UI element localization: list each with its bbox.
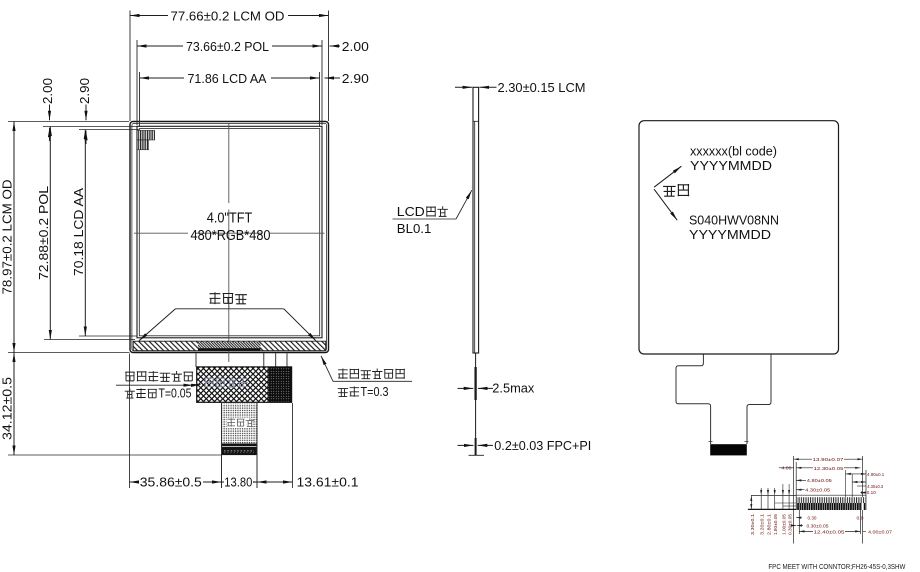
svg-text:0.30±0.05: 0.30±0.05 [788, 513, 793, 535]
svg-text:2.30±0.15 LCM: 2.30±0.15 LCM [498, 80, 586, 95]
svg-text:4.90±0.1: 4.90±0.1 [867, 472, 885, 477]
svg-text:13.90±0.07: 13.90±0.07 [813, 457, 845, 462]
svg-text:2.00: 2.00 [342, 39, 369, 54]
svg-text:T=0.05: T=0.05 [159, 386, 192, 400]
svg-text:xxxxxx(bl code): xxxxxx(bl code) [690, 144, 777, 159]
svg-text:77.66±0.2 LCM OD: 77.66±0.2 LCM OD [171, 8, 285, 23]
svg-text:FPC MEET WITH CONNTOR;FH26-45S: FPC MEET WITH CONNTOR;FH26-45S-0,3SHW [768, 562, 906, 571]
svg-text:72.88±0.2 POL: 72.88±0.2 POL [36, 186, 51, 280]
svg-text:12.40±0.05: 12.40±0.05 [814, 529, 846, 534]
svg-text:2.5max: 2.5max [492, 381, 534, 396]
svg-text:71.86 LCD AA: 71.86 LCD AA [188, 71, 267, 86]
svg-text:3.30±0.1: 3.30±0.1 [750, 513, 755, 535]
svg-text:BL0.1: BL0.1 [397, 222, 432, 236]
svg-text:13.61±0.1: 13.61±0.1 [297, 475, 359, 490]
svg-text:1.80±0.05: 1.80±0.05 [773, 513, 778, 535]
svg-text:12.30±0.05: 12.30±0.05 [814, 466, 845, 471]
svg-text:0.9: 0.9 [857, 516, 865, 521]
svg-text:4.0"TFT: 4.0"TFT [207, 210, 253, 227]
svg-text:4.80±0.05: 4.80±0.05 [807, 478, 833, 483]
svg-text:4.00: 4.00 [782, 466, 793, 471]
svg-text:4.30±0.05: 4.30±0.05 [805, 488, 831, 493]
svg-text:3.20±0.1: 3.20±0.1 [760, 513, 765, 535]
svg-text:1.00±0.05: 1.00±0.05 [781, 513, 786, 535]
svg-text:2.80±0.1: 2.80±0.1 [766, 513, 771, 535]
svg-text:T=0.3: T=0.3 [361, 385, 389, 399]
svg-text:0.30: 0.30 [808, 515, 818, 520]
svg-text:2.00: 2.00 [40, 78, 55, 104]
svg-text:73.66±0.2 POL: 73.66±0.2 POL [186, 39, 269, 54]
svg-text:YYYYMMDD: YYYYMMDD [690, 158, 772, 173]
svg-text:35.86±0.5: 35.86±0.5 [140, 475, 202, 490]
svg-text:480*RGB*480: 480*RGB*480 [191, 227, 271, 244]
svg-text:LCD: LCD [397, 205, 425, 219]
svg-text:YYYYMMDD: YYYYMMDD [689, 227, 771, 242]
svg-text:4.30±0.3: 4.30±0.3 [867, 484, 884, 489]
svg-text:34.12±0.5: 34.12±0.5 [0, 377, 15, 440]
svg-text:4.00±0.07: 4.00±0.07 [868, 529, 893, 534]
svg-text:0.2±0.03 FPC+PI: 0.2±0.03 FPC+PI [494, 438, 591, 453]
svg-text:13.80: 13.80 [224, 475, 252, 490]
svg-text:78.97±0.2 LCM OD: 78.97±0.2 LCM OD [0, 180, 15, 295]
svg-text:2.90: 2.90 [77, 78, 92, 104]
svg-text:S040HWV08NN: S040HWV08NN [689, 212, 779, 227]
svg-text:2.90: 2.90 [342, 71, 369, 86]
svg-text:0.30±0.05: 0.30±0.05 [807, 523, 830, 528]
svg-text:0.10: 0.10 [867, 490, 877, 495]
svg-text:70.18 LCD AA: 70.18 LCD AA [71, 188, 86, 276]
